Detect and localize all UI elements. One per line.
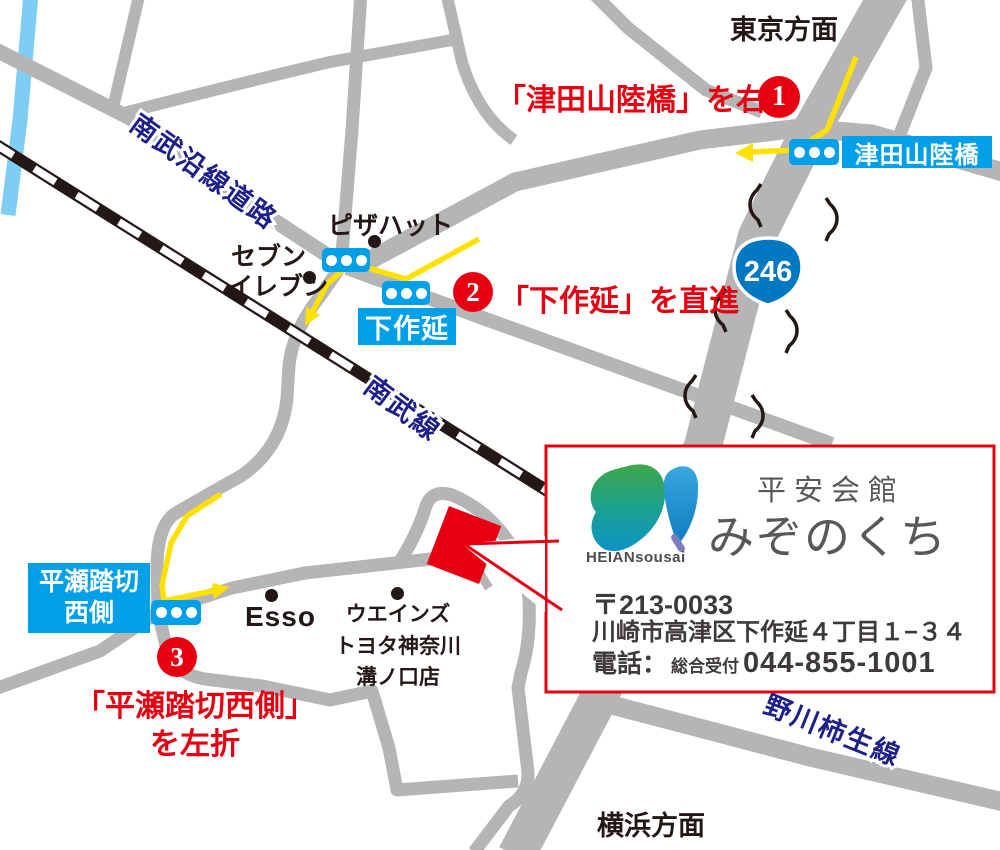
card-address: 川崎市高津区下作延４丁目１−３４ — [592, 612, 966, 647]
step3-badge: 3 — [157, 637, 197, 677]
hirase-line2: 西側 — [39, 598, 139, 629]
step3-line2: を左折 — [70, 726, 320, 764]
poi-pizza-hut: ピザハット — [328, 206, 453, 242]
poi-dot-pizza-hut — [368, 235, 381, 248]
minor-road-north — [116, 40, 452, 115]
roadname-nanbu-line: 南武線 — [358, 370, 446, 447]
minor-road-top — [446, 0, 514, 140]
step1-badge: 1 — [758, 76, 800, 118]
weins-line3: 溝ノ口店 — [332, 662, 464, 694]
weins-line1: ウエインズ — [332, 599, 464, 631]
hirase-line1: 平瀬踏切 — [39, 567, 139, 598]
signal-label-hirase: 平瀬踏切 西側 — [28, 563, 150, 633]
weins-line2: トヨタ神奈川 — [332, 631, 464, 663]
traffic-light-icon-hirase — [151, 600, 201, 625]
traffic-light-icon-shimosakunobe — [382, 281, 430, 305]
card-hall-name: みぞのくち — [708, 501, 948, 567]
seven-line2: イレブン — [228, 272, 306, 302]
route-arrow-1 — [735, 143, 753, 162]
phone-number: 044-855-1001 — [743, 647, 936, 680]
card-phone-row: 電話： 総合受付 044-855-1001 — [592, 644, 936, 680]
signal-label-shimosakunobe: 下作延 — [358, 308, 456, 345]
access-map: 246 南武沿線道路 南武線 野川柿生線 東京方面 横浜方面 「津田山陸橋」を右… — [0, 0, 1000, 850]
step2-badge: 2 — [453, 272, 493, 312]
river — [8, 0, 31, 215]
step1-instruction: 「津田山陸橋」を右折 — [496, 75, 796, 119]
phone-sublabel: 総合受付 — [671, 652, 739, 677]
poi-dot-seven-eleven — [303, 271, 316, 284]
step2-instruction: 「下作延」を直進 — [499, 276, 739, 320]
step3-instruction: 「平瀬踏切西側」 を左折 — [70, 688, 320, 763]
roadname-nanbu-ensen: 南武沿線道路 — [124, 108, 283, 235]
direction-tokyo: 東京方面 — [730, 8, 838, 47]
signal-label-tsudayama: 津田山陸橋 — [842, 136, 992, 168]
poi-weins-toyota: ウエインズ トヨタ神奈川 溝ノ口店 — [332, 599, 464, 694]
route-246-number: 246 — [744, 256, 792, 288]
minor-road-east — [900, 0, 926, 134]
logo-wordmark: HEIANsousai — [586, 549, 686, 566]
poi-dot-esso — [265, 589, 278, 602]
poi-esso: Esso — [245, 601, 316, 633]
traffic-light-icon-pizzahut — [322, 248, 370, 272]
traffic-light-icon-tsudayama — [789, 139, 839, 165]
poi-dot-weins — [391, 587, 404, 600]
seven-line1: セブン — [228, 242, 306, 272]
poi-seven-eleven: セブン イレブン — [228, 242, 306, 302]
direction-yokohama: 横浜方面 — [597, 804, 705, 843]
phone-label: 電話： — [592, 644, 667, 680]
minor-road-nw — [112, 0, 140, 112]
step3-line1: 「平瀬踏切西側」 — [70, 688, 320, 726]
